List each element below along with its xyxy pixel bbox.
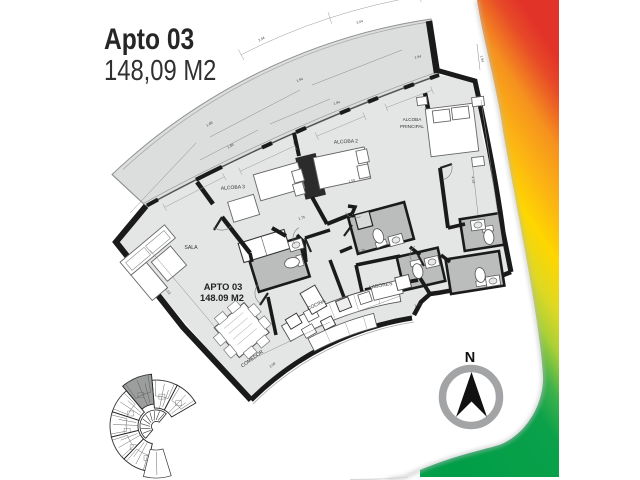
svg-text:N: N (465, 350, 475, 366)
svg-text:SALA: SALA (184, 245, 198, 251)
svg-text:ALCOBA 2: ALCOBA 2 (334, 138, 359, 145)
svg-text:PRINCIPAL: PRINCIPAL (400, 124, 424, 129)
svg-text:APTO 03: APTO 03 (204, 282, 243, 292)
svg-text:148.09 M2: 148.09 M2 (200, 293, 244, 303)
svg-text:ALCOBA: ALCOBA (403, 117, 423, 122)
